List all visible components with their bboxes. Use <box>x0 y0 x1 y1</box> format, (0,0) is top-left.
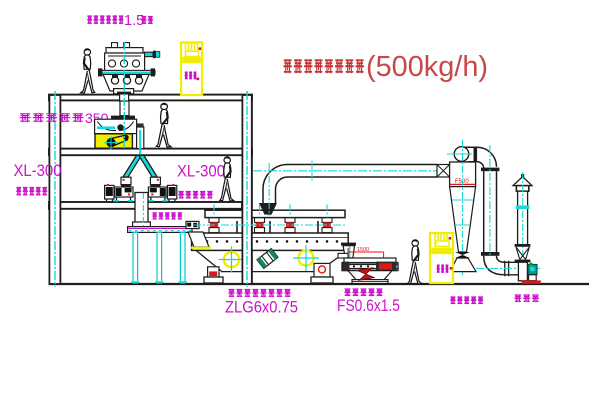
svg-text:1500: 1500 <box>357 247 369 253</box>
svg-text:(500kg/h): (500kg/h) <box>366 51 488 83</box>
svg-text:FS0.6x1.5: FS0.6x1.5 <box>337 296 400 315</box>
svg-text:1.5: 1.5 <box>124 13 144 29</box>
svg-text:XL-300: XL-300 <box>177 163 225 181</box>
svg-text:ZLG6x0.75: ZLG6x0.75 <box>225 298 298 317</box>
svg-text:XL-300: XL-300 <box>14 162 62 180</box>
